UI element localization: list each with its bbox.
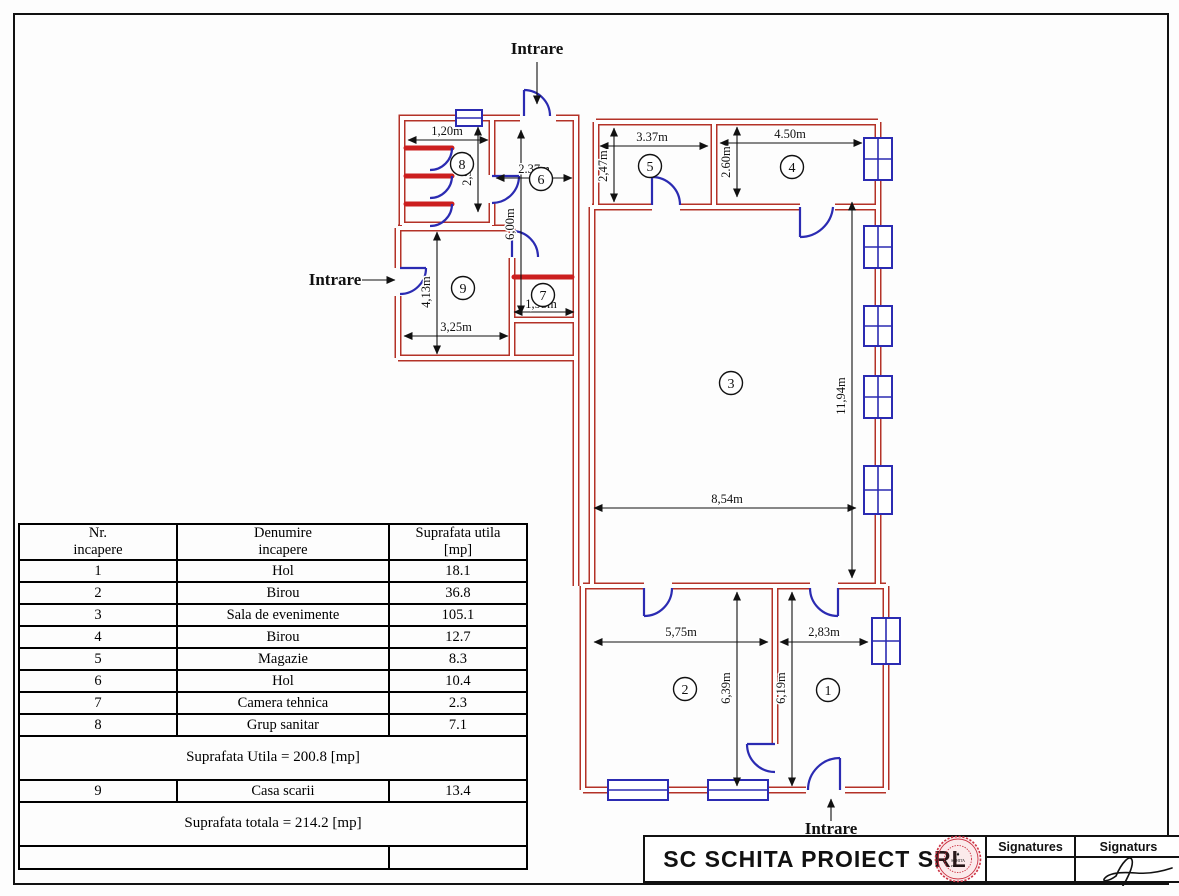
subtotal-value: Suprafata Utila = 200.8 [mp] bbox=[19, 736, 527, 780]
entrance-label-left: Intrare bbox=[309, 270, 362, 289]
room-number-5: 5 bbox=[639, 155, 662, 178]
header-denumire: Denumireincapere bbox=[177, 524, 389, 560]
window bbox=[864, 226, 892, 268]
room-number-8: 8 bbox=[451, 153, 474, 176]
handwritten-signature bbox=[1078, 852, 1178, 886]
signatures-column-1: Signatures bbox=[987, 837, 1076, 881]
table-row: 6Hol10.4 bbox=[19, 670, 527, 692]
signatures-column-2: Signaturs bbox=[1076, 837, 1179, 881]
room-number-9: 9 bbox=[452, 277, 475, 300]
svg-text:2: 2 bbox=[682, 683, 689, 698]
header-suprafata: Suprafata utila[mp] bbox=[389, 524, 527, 560]
dim-room3-height: 11,94m bbox=[834, 377, 848, 415]
dim-room4-width: 4.50m bbox=[774, 127, 806, 141]
signatures-header-1: Signatures bbox=[987, 837, 1074, 858]
window bbox=[608, 780, 668, 800]
table-row: 1Hol18.1 bbox=[19, 560, 527, 582]
window bbox=[864, 138, 892, 180]
drawing-sheet: 1,20m 2,90m 2.37m 6,00m 3.37m 2,47m 4.50… bbox=[0, 0, 1179, 896]
window bbox=[872, 618, 900, 664]
company-cell: SC SCHITA PROIECT SRL ♦ SCHITA PROIECT bbox=[645, 837, 987, 881]
title-block: SC SCHITA PROIECT SRL ♦ SCHITA PROIECT S… bbox=[643, 835, 1179, 883]
room-area-table: Nr.incapere Denumireincapere Suprafata u… bbox=[18, 523, 528, 870]
dim-room1-width: 2,83m bbox=[808, 625, 840, 639]
room-number-1: 1 bbox=[817, 679, 840, 702]
signatures-cell-2 bbox=[1076, 858, 1179, 881]
empty-row bbox=[19, 846, 527, 869]
svg-text:1: 1 bbox=[825, 684, 832, 699]
table-row: 8Grup sanitar7.1 bbox=[19, 714, 527, 736]
svg-text:4: 4 bbox=[789, 161, 796, 176]
signatures-cell-1 bbox=[987, 858, 1074, 881]
dim-room2-height: 6,39m bbox=[719, 672, 733, 704]
window bbox=[708, 780, 768, 800]
svg-text:3: 3 bbox=[728, 377, 735, 392]
table-row-9: 9Casa scarii13.4 bbox=[19, 780, 527, 802]
svg-text:5: 5 bbox=[647, 160, 654, 175]
window bbox=[864, 376, 892, 418]
dim-room1-height: 6,19m bbox=[774, 672, 788, 704]
window bbox=[864, 466, 892, 514]
svg-text:8: 8 bbox=[459, 158, 466, 173]
dim-room9-height: 4,13m bbox=[419, 276, 433, 308]
window bbox=[864, 306, 892, 346]
table-row: 2Birou36.8 bbox=[19, 582, 527, 604]
room-number-7: 7 bbox=[532, 284, 555, 307]
room-number-3: 3 bbox=[720, 372, 743, 395]
table-header-row: Nr.incapere Denumireincapere Suprafata u… bbox=[19, 524, 527, 560]
svg-text:6: 6 bbox=[538, 173, 545, 188]
svg-text:SCHITA: SCHITA bbox=[951, 858, 965, 863]
dim-room3-width: 8,54m bbox=[711, 492, 743, 506]
svg-text:PROIECT: PROIECT bbox=[951, 864, 966, 868]
dim-room4-height: 2.60m bbox=[719, 146, 733, 178]
dim-room2-width: 5,75m bbox=[665, 625, 697, 639]
total-row: Suprafata totala = 214.2 [mp] bbox=[19, 802, 527, 846]
table-row: 7Camera tehnica2.3 bbox=[19, 692, 527, 714]
table-row: 5Magazie8.3 bbox=[19, 648, 527, 670]
room-number-4: 4 bbox=[781, 156, 804, 179]
dim-room5-width: 3.37m bbox=[636, 130, 668, 144]
table-row: 3Sala de evenimente105.1 bbox=[19, 604, 527, 626]
svg-text:7: 7 bbox=[540, 289, 547, 304]
room-number-6: 6 bbox=[530, 168, 553, 191]
subtotal-row: Suprafata Utila = 200.8 [mp] bbox=[19, 736, 527, 780]
room-number-2: 2 bbox=[674, 678, 697, 701]
header-nr: Nr.incapere bbox=[19, 524, 177, 560]
dim-room9-width: 3,25m bbox=[440, 320, 472, 334]
dim-room5-height: 2,47m bbox=[596, 150, 610, 182]
total-value: Suprafata totala = 214.2 [mp] bbox=[19, 802, 527, 846]
dim-hall6-height: 6,00m bbox=[503, 208, 517, 240]
company-name: SC SCHITA PROIECT SRL bbox=[663, 846, 966, 873]
svg-text:9: 9 bbox=[460, 282, 467, 297]
dim-room8-width: 1,20m bbox=[431, 124, 463, 138]
company-stamp: ♦ SCHITA PROIECT bbox=[933, 834, 983, 884]
table-row: 4Birou12.7 bbox=[19, 626, 527, 648]
entrance-label-top: Intrare bbox=[511, 39, 564, 58]
